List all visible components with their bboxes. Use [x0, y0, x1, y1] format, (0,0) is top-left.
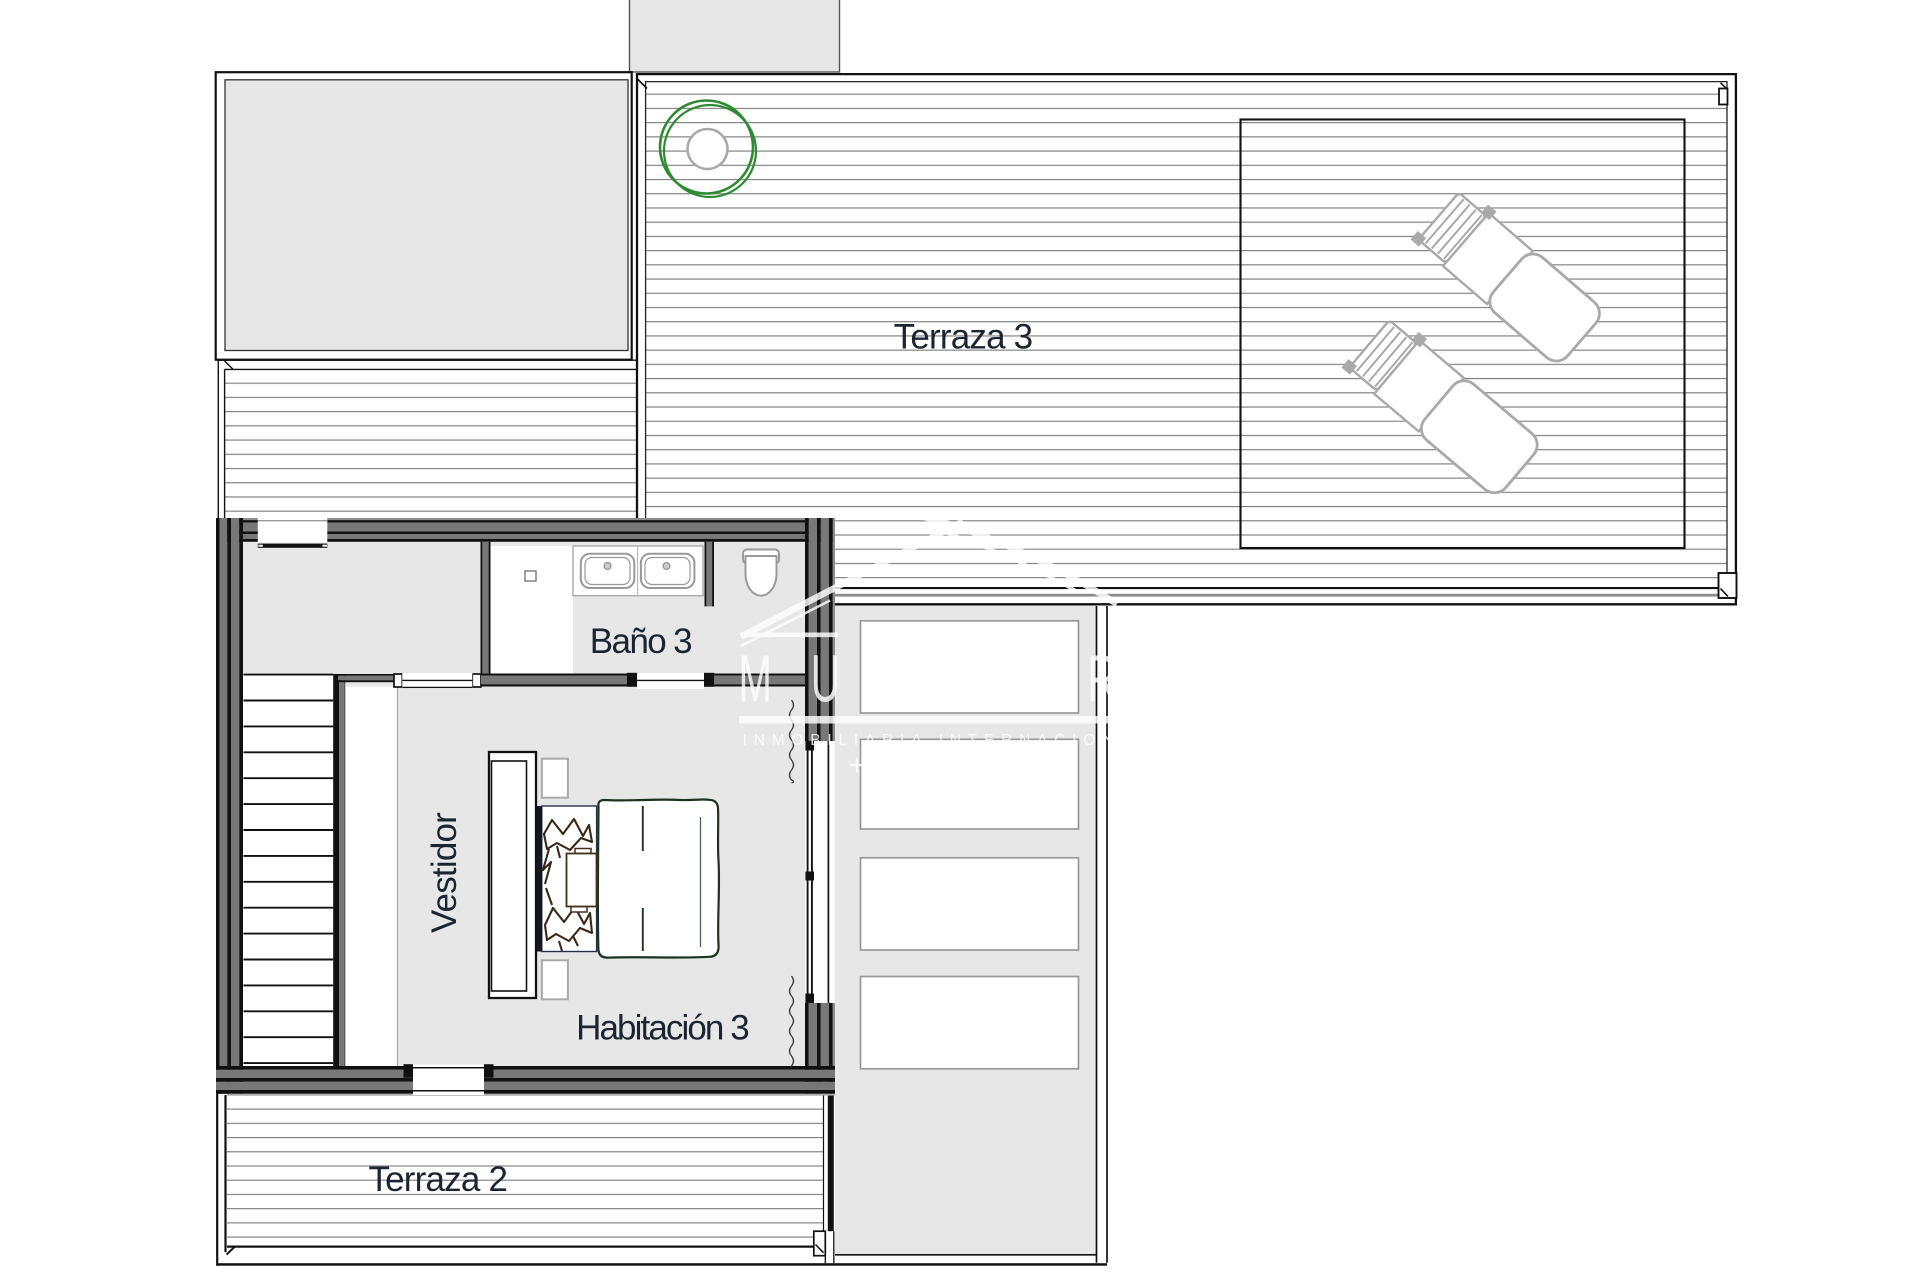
svg-text:Habitación 3: Habitación 3 — [576, 1009, 748, 1048]
svg-text:M: M — [738, 641, 771, 716]
svg-text:Vestidor: Vestidor — [425, 812, 464, 933]
svg-text:R: R — [1087, 641, 1116, 716]
svg-text:INMOBILIARIA INTERNACIONAL: INMOBILIARIA INTERNACIONAL — [743, 732, 1153, 749]
svg-text:U: U — [811, 641, 840, 716]
svg-text:Baño 3: Baño 3 — [590, 622, 691, 661]
svg-text:Terraza 3: Terraza 3 — [894, 318, 1033, 357]
svg-text:Terraza 2: Terraza 2 — [368, 1160, 507, 1199]
